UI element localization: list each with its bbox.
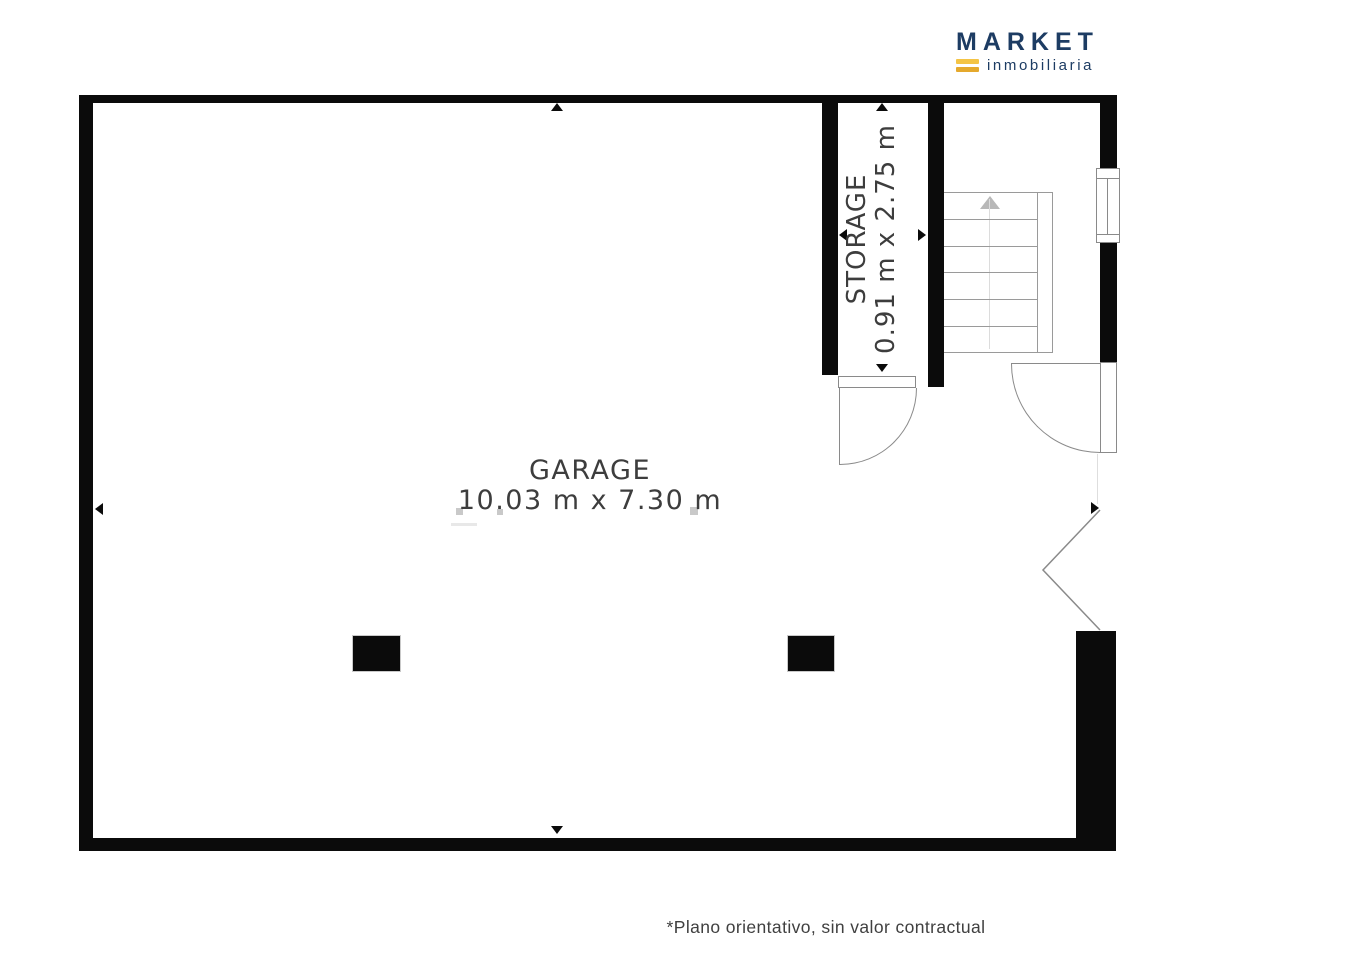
wall-top: [79, 95, 1117, 103]
arrow-down-icon: [876, 364, 888, 372]
garage-room-label: GARAGE 10.03 m x 7.30 m: [458, 456, 722, 516]
wall-bottom: [79, 838, 1116, 851]
arrow-up-icon: [876, 103, 888, 111]
storage-room-label: STORAGE 0.91 m x 2.75 m: [843, 124, 901, 354]
wall-right-upper: [1100, 95, 1117, 168]
hall-door-frame: [1100, 362, 1117, 453]
brand-subtitle: inmobiliaria: [987, 57, 1094, 74]
wall-storage-right: [928, 103, 944, 387]
storage-door-swing-arc: [840, 388, 917, 465]
storage-door-frame: [838, 376, 916, 388]
floor-plan-page: MARKET inmobiliaria: [0, 0, 1358, 960]
stair-tread: [941, 272, 1038, 273]
wall-storage-left: [822, 103, 838, 375]
pillar: [788, 636, 834, 671]
window: [1096, 168, 1120, 243]
hall-door-swing-arc: [1011, 364, 1100, 453]
smudge-mark: [451, 523, 477, 526]
brand-logo: MARKET inmobiliaria: [956, 29, 1126, 74]
garage-dimensions: 10.03 m x 7.30 m: [458, 486, 722, 516]
brand-name: MARKET: [956, 29, 1126, 55]
wall-left: [79, 95, 93, 851]
wall-right-mid: [1100, 243, 1117, 362]
stair-tread: [941, 326, 1038, 327]
pillar: [353, 636, 400, 671]
logo-equals-icon: [956, 59, 979, 72]
stair-tread: [941, 219, 1038, 220]
arrow-right-icon: [1091, 502, 1099, 514]
stair-stringer-line: [1037, 193, 1038, 352]
wall-right-lower-block: [1076, 631, 1116, 851]
arrow-up-icon: [551, 103, 563, 111]
stairs-up-arrow-icon: [980, 196, 1000, 209]
arrow-right-icon: [918, 229, 926, 241]
garage-name: GARAGE: [458, 456, 722, 486]
stair-tread: [941, 299, 1038, 300]
stairs: [940, 192, 1053, 353]
wall-opening-zigzag: [1040, 504, 1102, 634]
arrow-left-icon: [95, 503, 103, 515]
opening-guide-line: [1097, 454, 1098, 504]
storage-name: STORAGE: [843, 124, 872, 354]
storage-dimensions: 0.91 m x 2.75 m: [872, 124, 901, 354]
arrow-down-icon: [551, 826, 563, 834]
stair-tread: [941, 246, 1038, 247]
disclaimer-text: *Plano orientativo, sin valor contractua…: [667, 917, 986, 938]
